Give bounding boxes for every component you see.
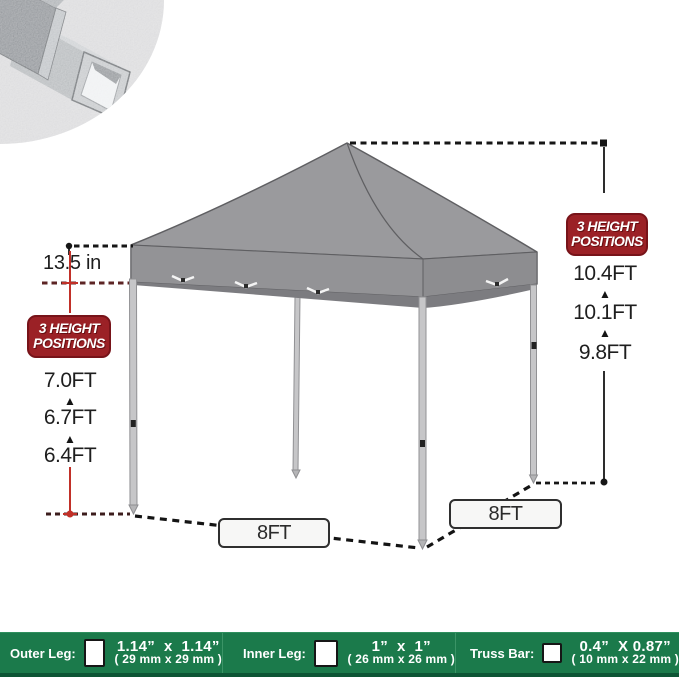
tent-leg-back-right [530,285,538,483]
valance-height-label: 13.5 in [34,252,110,275]
badge-line-1: 3 HEIGHT [570,219,644,234]
left-height-value-1: 7.0FT [30,369,110,393]
right-height-value-1: 10.4FT [561,262,649,286]
spec-bar-bottom-edge [0,673,679,677]
right-height-value-2: 10.1FT [561,301,649,325]
product-diagram-page: 13.5 in 3 HEIGHT POSITIONS 7.0FT ▲ 6.7FT… [0,0,679,679]
left-height-positions-badge: 3 HEIGHT POSITIONS [27,315,111,358]
outer-leg-label: Outer Leg: [10,646,76,661]
badge-line-1: 3 HEIGHT [31,321,107,336]
base-width-left-label: 8FT [218,518,330,548]
left-height-value-3: 6.4FT [30,444,110,468]
base-width-right-label: 8FT [449,499,562,529]
up-arrow-icon: ▲ [561,327,649,339]
spec-section-truss-bar: Truss Bar: 0.4” X 0.87” ( 10 mm x 22 mm … [455,633,679,673]
outer-leg-size-mm: ( 29 mm x 29 mm ) [115,653,222,666]
frame-spec-bar: Outer Leg: 1.14” x 1.14” ( 29 mm x 29 mm… [0,632,679,673]
tent-leg-front-center [418,297,427,549]
inner-leg-size-mm: ( 26 mm x 26 mm ) [348,653,455,666]
inner-leg-profile-icon [314,640,338,667]
canopy-roof [131,143,537,297]
badge-line-2: POSITIONS [31,336,107,351]
left-height-value-2: 6.7FT [30,406,110,430]
truss-bar-profile-icon [542,643,561,663]
truss-bar-size-mm: ( 10 mm x 22 mm ) [572,653,679,666]
right-height-positions-badge: 3 HEIGHT POSITIONS [566,213,648,256]
outer-leg-profile-icon [84,639,105,667]
truss-bar-label: Truss Bar: [470,646,534,661]
right-height-value-3: 9.8FT [561,341,649,365]
spec-section-outer-leg: Outer Leg: 1.14” x 1.14” ( 29 mm x 29 mm… [0,633,222,673]
badge-line-2: POSITIONS [570,234,644,249]
metal-tube-inset-photo [0,0,170,150]
tent-leg-front-left [129,279,138,514]
inner-leg-label: Inner Leg: [243,646,306,661]
up-arrow-icon: ▲ [561,288,649,300]
tent-leg-back-left [292,296,300,478]
spec-section-inner-leg: Inner Leg: 1” x 1” ( 26 mm x 26 mm ) [222,633,455,673]
